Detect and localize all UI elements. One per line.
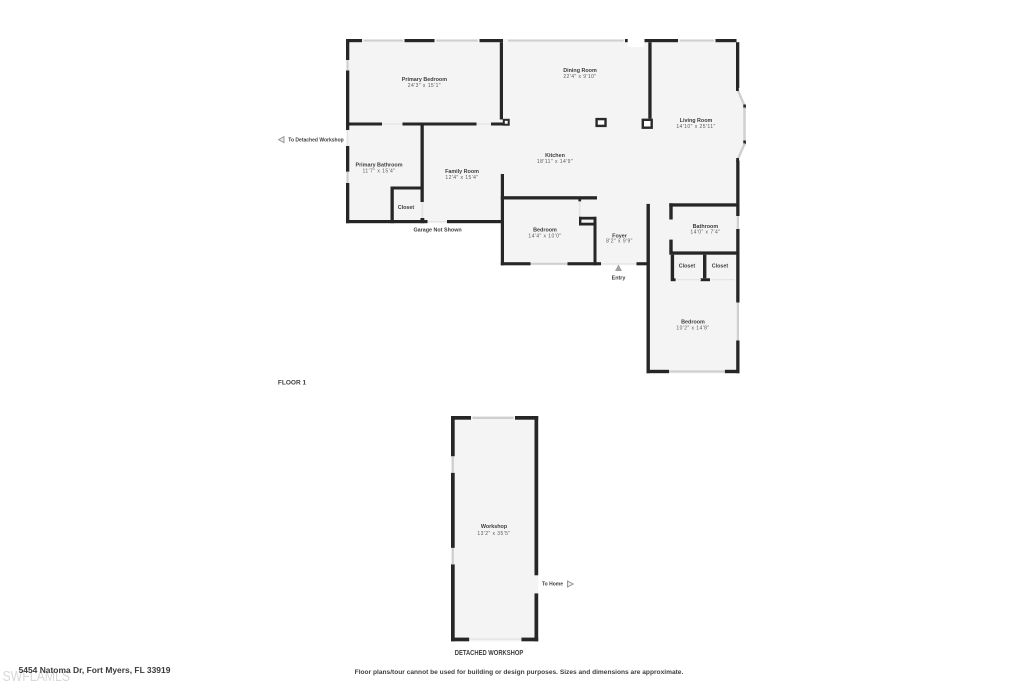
svg-text:10'2" x 14'8": 10'2" x 14'8" — [676, 326, 709, 332]
svg-text:DETACHED WORKSHOP: DETACHED WORKSHOP — [455, 650, 524, 657]
svg-text:14'10" x 25'11": 14'10" x 25'11" — [676, 124, 715, 130]
svg-text:14'0" x 7'4": 14'0" x 7'4" — [690, 230, 720, 236]
svg-text:13'2" x 35'5": 13'2" x 35'5" — [477, 531, 510, 537]
svg-text:5454 Natoma Dr, Fort Myers, FL: 5454 Natoma Dr, Fort Myers, FL 33919 — [19, 665, 171, 675]
svg-text:Primary Bathroom: Primary Bathroom — [355, 162, 402, 168]
svg-text:Floor plans/tour cannot be use: Floor plans/tour cannot be used for buil… — [355, 669, 684, 676]
svg-text:Closet: Closet — [679, 263, 696, 269]
svg-text:Closet: Closet — [398, 205, 415, 211]
svg-text:8'2" x 9'9": 8'2" x 9'9" — [606, 239, 633, 245]
svg-text:To Detached Workshop: To Detached Workshop — [288, 138, 343, 144]
svg-text:18'11" x 14'9": 18'11" x 14'9" — [537, 159, 573, 165]
svg-text:Entry: Entry — [612, 275, 626, 281]
svg-text:Closet: Closet — [712, 263, 729, 269]
svg-text:24'3" x 15'1": 24'3" x 15'1" — [408, 83, 441, 89]
svg-text:12'4" x 15'4": 12'4" x 15'4" — [445, 175, 478, 181]
svg-text:FLOOR 1: FLOOR 1 — [278, 380, 307, 387]
svg-text:22'4" x 9'10": 22'4" x 9'10" — [563, 74, 596, 80]
svg-text:Kitchen: Kitchen — [545, 153, 565, 159]
svg-text:Living Room: Living Room — [680, 118, 713, 124]
svg-text:To Home: To Home — [542, 582, 563, 588]
svg-text:Workshop: Workshop — [481, 524, 508, 530]
svg-text:Primary Bedroom: Primary Bedroom — [402, 77, 447, 83]
svg-text:Dining Room: Dining Room — [563, 68, 597, 74]
svg-text:Bedroom: Bedroom — [681, 319, 705, 325]
svg-text:14'4" x 10'0": 14'4" x 10'0" — [528, 233, 561, 239]
svg-text:Garage Not Shown: Garage Not Shown — [413, 228, 461, 234]
svg-text:11'7" x 15'4": 11'7" x 15'4" — [363, 169, 396, 175]
